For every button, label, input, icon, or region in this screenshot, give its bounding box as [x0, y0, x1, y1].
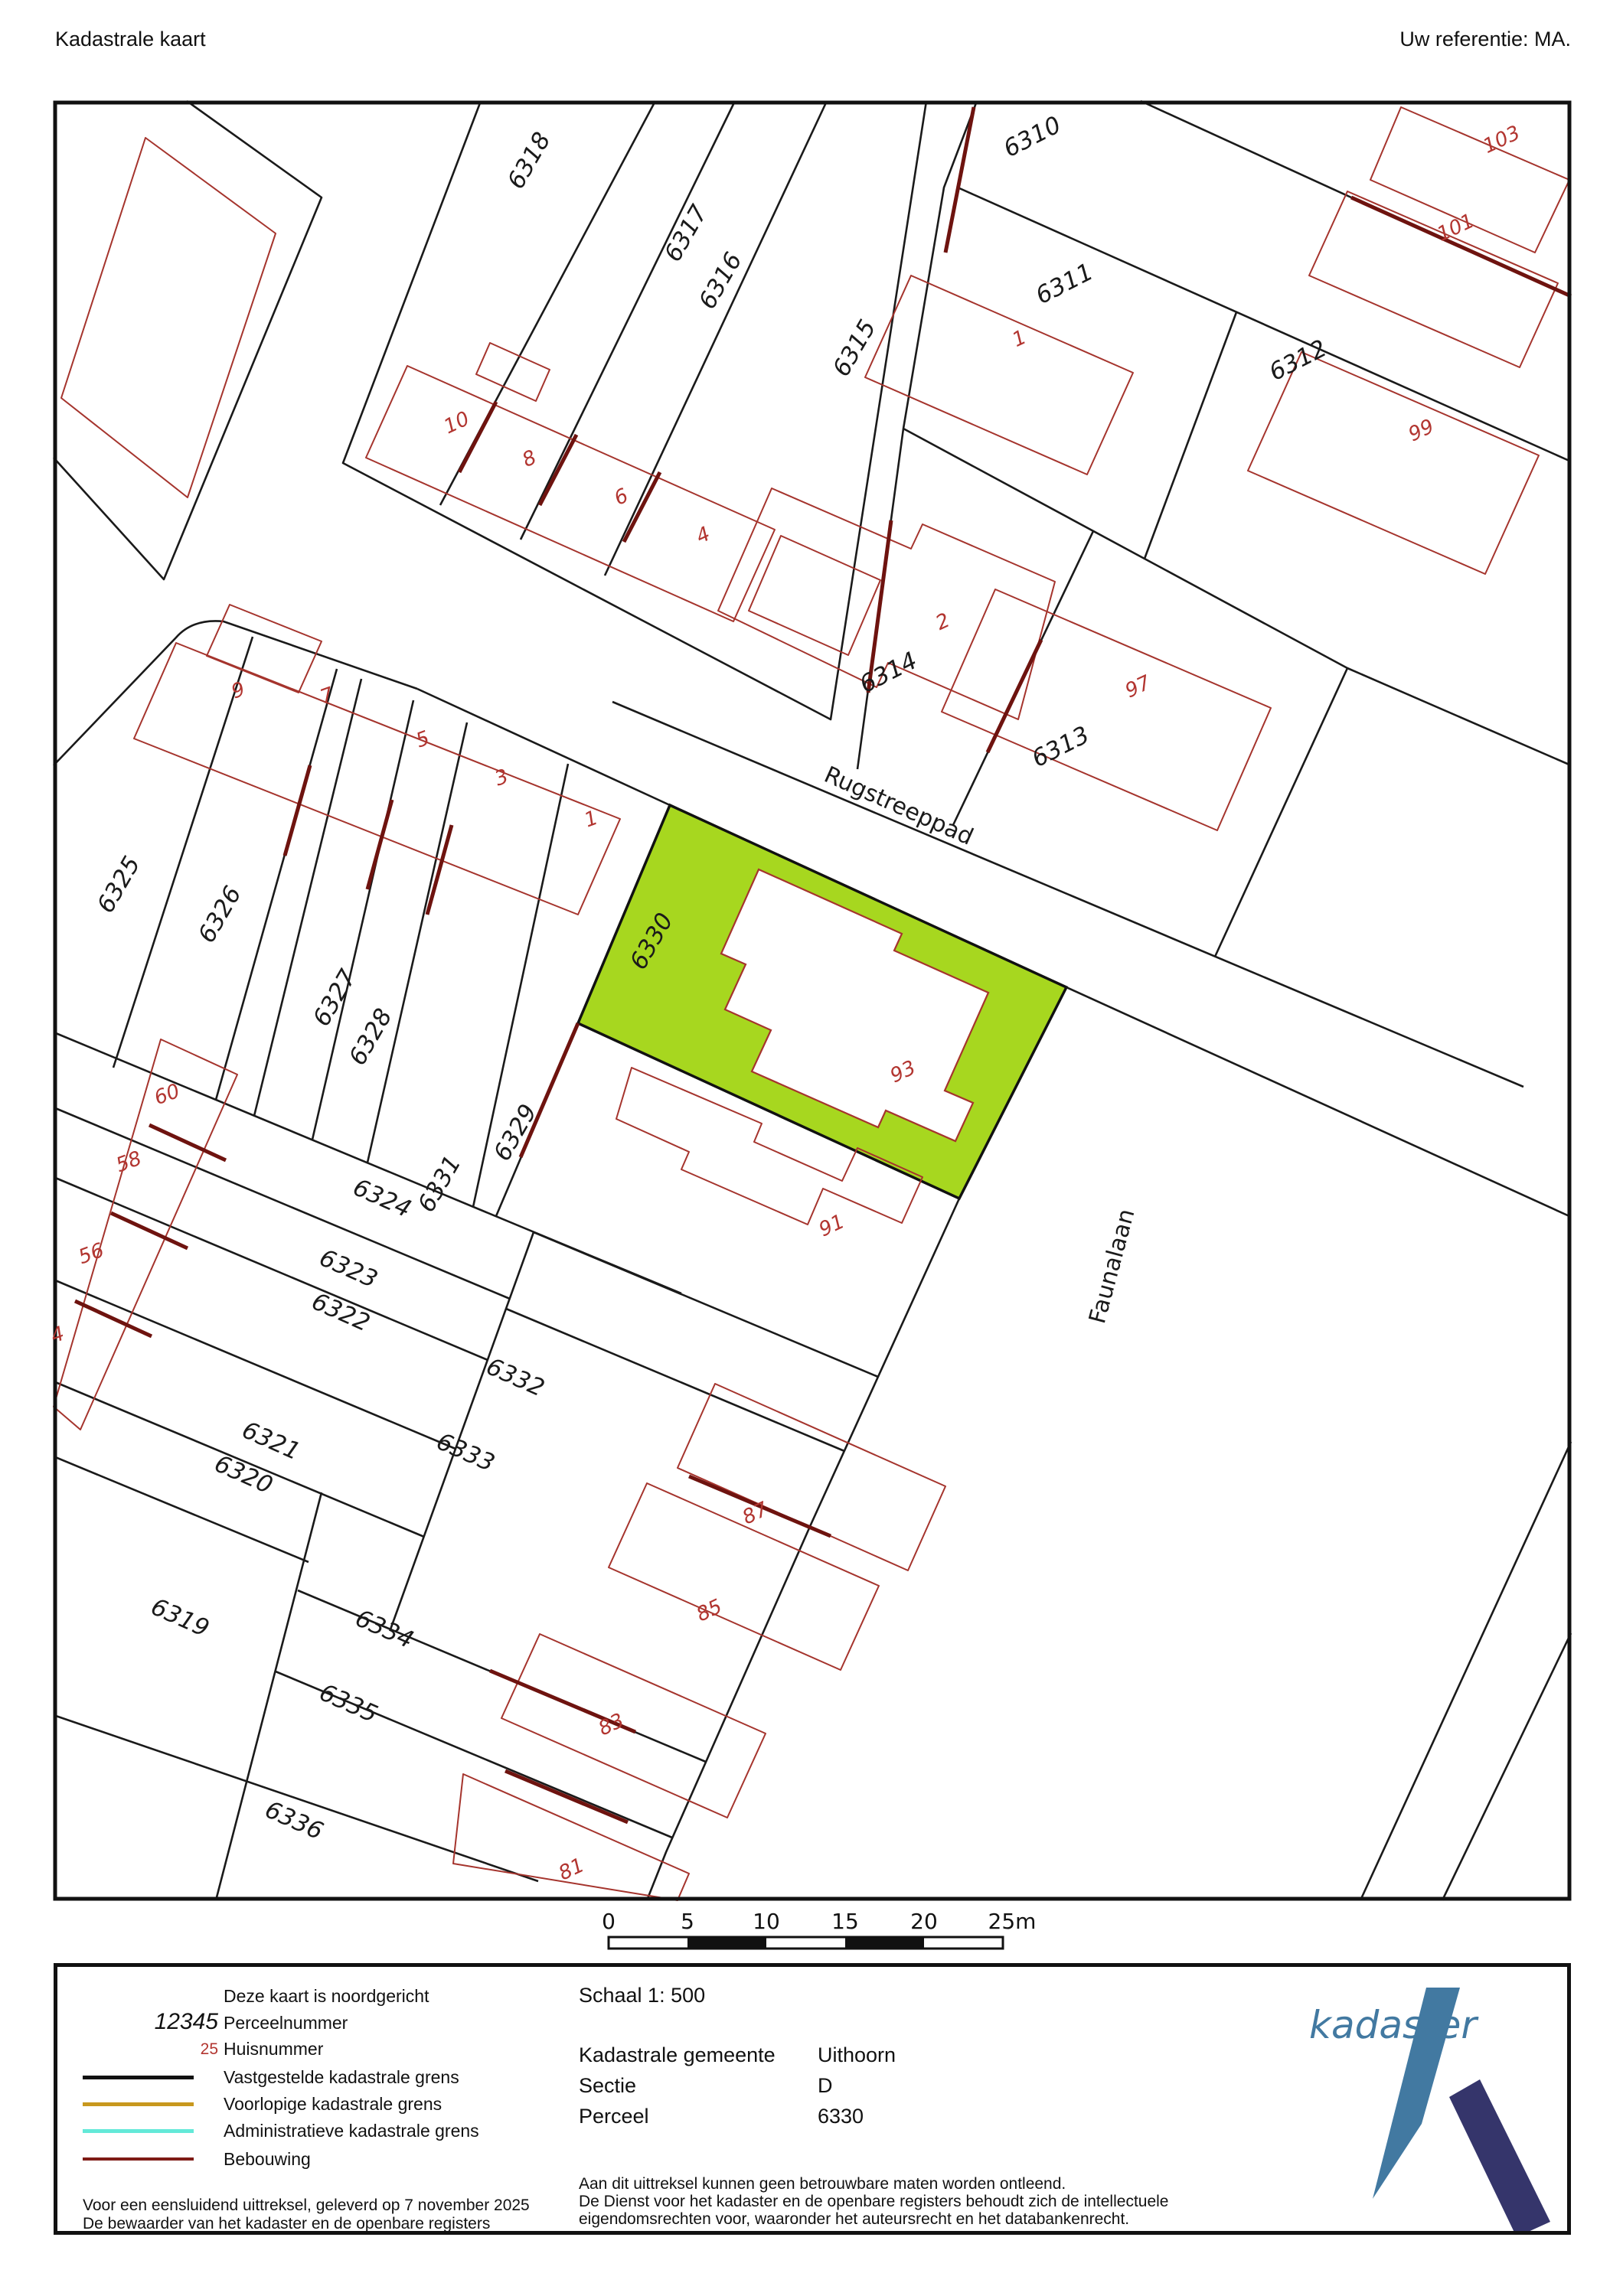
scale-tick-label: 5	[681, 1909, 694, 1934]
house-number-label: 4	[693, 523, 714, 549]
perceelnummer-symbol: 12345	[130, 2009, 218, 2035]
bebouwing-label: Bebouwing	[224, 2149, 311, 2170]
parcel-label: 6336	[261, 1795, 328, 1845]
parcel-label: 6333	[433, 1427, 499, 1477]
house-number-label: 7	[317, 683, 337, 709]
voorlopige-grens-swatch	[83, 2102, 194, 2106]
parcel-label: 6332	[482, 1352, 549, 1402]
footnote-2: De bewaarder van het kadaster en de open…	[83, 2215, 490, 2233]
parcel-label: 6314	[855, 647, 922, 699]
house-number-label: 103	[1480, 122, 1524, 158]
map-svg: Rugstreeppad Faunalaan 6318 6317 6316 63…	[0, 0, 1623, 2296]
parcel-label: 6325	[92, 852, 146, 918]
vastgestelde-grens-label: Vastgestelde kadastrale grens	[224, 2067, 459, 2088]
parcel-label: 6327	[308, 965, 362, 1032]
kadaster-logo-navy-shape	[1449, 2079, 1550, 2231]
parcel-label: 6317	[659, 201, 714, 267]
house-number-label: 56	[76, 1239, 107, 1270]
house-number-label: 10	[440, 407, 473, 439]
legend-box: Deze kaart is noordgericht 12345 Perceel…	[54, 1963, 1571, 2235]
north-note: Deze kaart is noordgericht	[224, 1986, 429, 2007]
scale-label: Schaal 1: 500	[579, 1984, 705, 2007]
house-number-label: 6	[611, 484, 632, 510]
vastgestelde-grens-swatch	[83, 2076, 194, 2079]
huisnummer-label: Huisnummer	[224, 2039, 323, 2060]
house-number-label: 3	[491, 765, 511, 791]
perceel-value: 6330	[818, 2105, 864, 2128]
parcel-label: 6324	[349, 1173, 416, 1223]
scale-tick-label: 20	[910, 1909, 938, 1934]
scale-tick-label: 25m	[988, 1909, 1037, 1934]
parcel-label: 6335	[315, 1678, 382, 1728]
house-number-label: 4	[47, 1322, 67, 1349]
parcel-label: 6326	[193, 882, 247, 947]
administratieve-grens-label: Administratieve kadastrale grens	[224, 2121, 479, 2141]
street-label-rugstreeppad: Rugstreeppad	[820, 762, 977, 851]
sectie-value: D	[818, 2074, 833, 2098]
house-number-label: 85	[693, 1595, 726, 1626]
parcel-label: 6321	[238, 1416, 305, 1466]
house-number-label: 1	[1009, 326, 1030, 352]
parcel-label: 6319	[147, 1593, 214, 1642]
disclaimer-line-2: De Dienst voor het kadaster en de openba…	[579, 2193, 1168, 2211]
house-number-label: 8	[519, 446, 540, 472]
parcel-label: 6318	[502, 128, 557, 194]
house-number-label: 99	[1405, 415, 1438, 446]
huisnummer-symbol: 25	[130, 2040, 218, 2059]
house-number-label: 97	[1122, 671, 1154, 703]
house-number-label: 101	[1434, 210, 1478, 246]
house-number-label: 2	[932, 609, 954, 635]
parcel-label: 6312	[1265, 334, 1331, 386]
parcel-label: 6315	[828, 315, 882, 381]
scale-tick-label: 0	[602, 1909, 616, 1934]
disclaimer-line-1: Aan dit uittreksel kunnen geen betrouwba…	[579, 2175, 1066, 2193]
scale-tick-label: 10	[753, 1909, 780, 1934]
kadaster-logo-text: kadaster	[1309, 2003, 1479, 2047]
parcel-label: 6311	[1031, 258, 1098, 310]
street-label-faunalaan: Faunalaan	[1084, 1206, 1141, 1326]
parcel-label: 6310	[999, 111, 1066, 163]
voorlopige-grens-label: Voorlopige kadastrale grens	[224, 2094, 442, 2115]
parcel-label: 6329	[488, 1100, 543, 1166]
house-number-label: 91	[815, 1210, 848, 1241]
sectie-label: Sectie	[579, 2074, 636, 2098]
gemeente-label: Kadastrale gemeente	[579, 2043, 776, 2067]
parcel-label: 6320	[211, 1450, 277, 1499]
administratieve-grens-swatch	[83, 2129, 194, 2133]
scale-bar: 0 5 10 15 20 25m	[602, 1909, 1036, 1949]
scale-tick-label: 15	[831, 1909, 859, 1934]
house-number-label: 87	[739, 1498, 772, 1529]
parcel-label: 6316	[694, 248, 748, 314]
house-number-label: 83	[595, 1709, 628, 1740]
perceelnummer-label: Perceelnummer	[224, 2013, 348, 2033]
parcel-label: 6334	[351, 1604, 418, 1654]
disclaimer-line-3: eigendomsrechten voor, waaronder het aut…	[579, 2210, 1129, 2229]
perceel-label: Perceel	[579, 2105, 649, 2128]
gemeente-value: Uithoorn	[818, 2043, 896, 2067]
parcel-label: 6313	[1027, 721, 1094, 773]
house-number-label: 5	[413, 727, 433, 753]
highlighted-parcel-6330	[578, 805, 1066, 1199]
bebouwing-swatch	[83, 2157, 194, 2161]
parcel-label: 6322	[308, 1287, 374, 1337]
footnote-1: Voor een eensluidend uittreksel, gelever…	[83, 2197, 530, 2215]
kadaster-logo: kadaster	[1190, 1978, 1566, 2231]
house-number-label: 58	[113, 1147, 145, 1178]
kadastrale-kaart-page: { "header": { "title": "Kadastrale kaart…	[0, 0, 1623, 2296]
parcel-label: 6323	[315, 1244, 382, 1293]
